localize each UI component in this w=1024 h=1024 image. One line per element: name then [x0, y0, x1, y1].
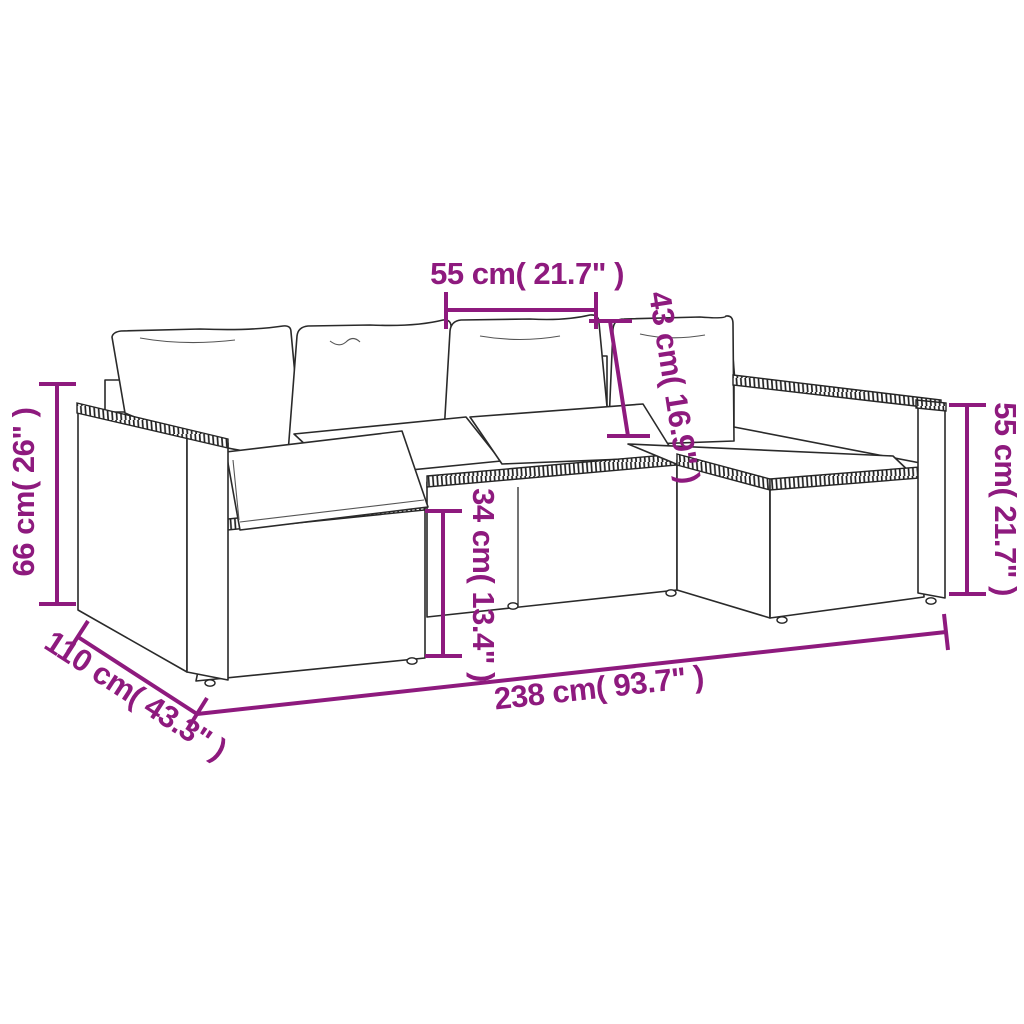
dimension-right-armrest-height: 55 cm( 21.7" ) — [949, 402, 1023, 596]
chaise-seat-base — [196, 499, 425, 686]
sofa-foot — [205, 680, 215, 686]
dimension-label-seat-width: 55 cm( 21.7" ) — [430, 256, 624, 291]
sofa-foot — [407, 658, 417, 664]
dimension-label-right-armrest-height: 55 cm( 21.7" ) — [988, 402, 1023, 596]
dimension-left-armrest-height: 66 cm( 26" ) — [6, 384, 76, 604]
sofa-foot — [926, 598, 936, 604]
sofa-foot — [666, 590, 676, 596]
dimension-label-seat-height: 34 cm( 13.4" ) — [466, 488, 501, 682]
dimension-label-left-armrest-height: 66 cm( 26" ) — [6, 408, 41, 577]
sofa-line-drawing: 55 cm( 21.7" ) 43 cm( 16.9" ) 66 cm( 26"… — [0, 0, 1024, 1024]
product-dimension-diagram: 55 cm( 21.7" ) 43 cm( 16.9" ) 66 cm( 26"… — [0, 0, 1024, 1024]
dimension-label-total-width: 238 cm( 93.7" ) — [492, 659, 705, 717]
sofa-foot — [777, 617, 787, 623]
sofa-foot — [508, 603, 518, 609]
right-armrest — [916, 400, 946, 604]
dimension-seat-width: 55 cm( 21.7" ) — [430, 256, 624, 329]
left-armrest — [77, 403, 228, 680]
middle-seat-base — [427, 454, 677, 617]
ottoman-base — [677, 454, 924, 623]
